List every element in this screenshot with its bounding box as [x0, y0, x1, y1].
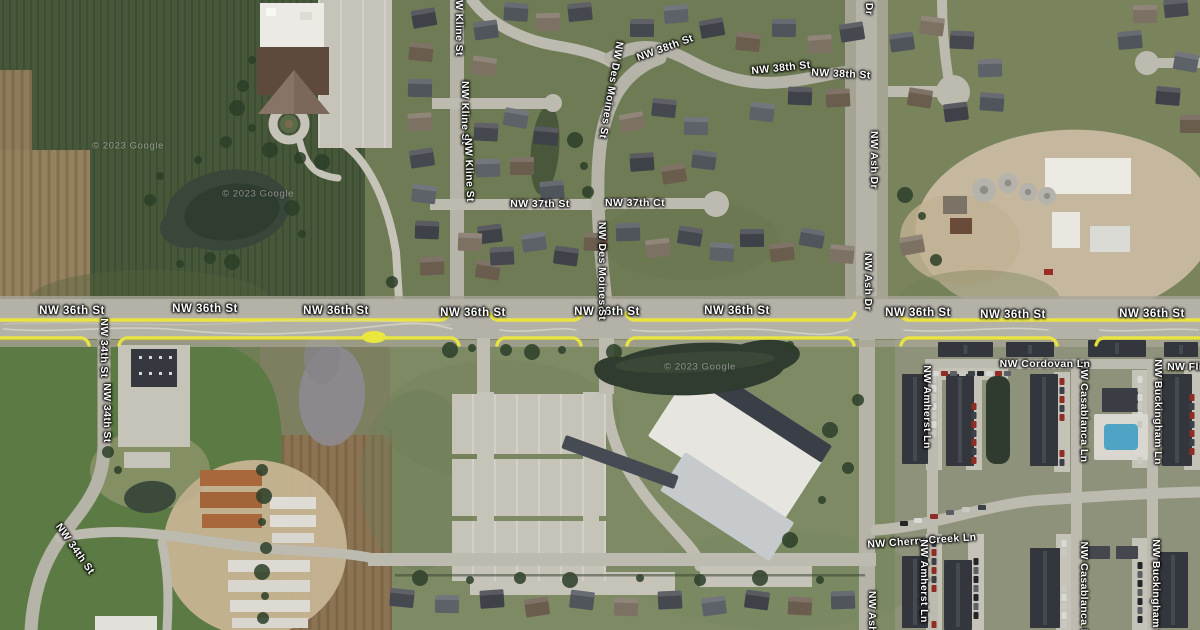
aerial-imagery: [0, 0, 1200, 630]
satellite-map[interactable]: NW 36th StNW 36th StNW 36th StNW 36th St…: [0, 0, 1200, 630]
